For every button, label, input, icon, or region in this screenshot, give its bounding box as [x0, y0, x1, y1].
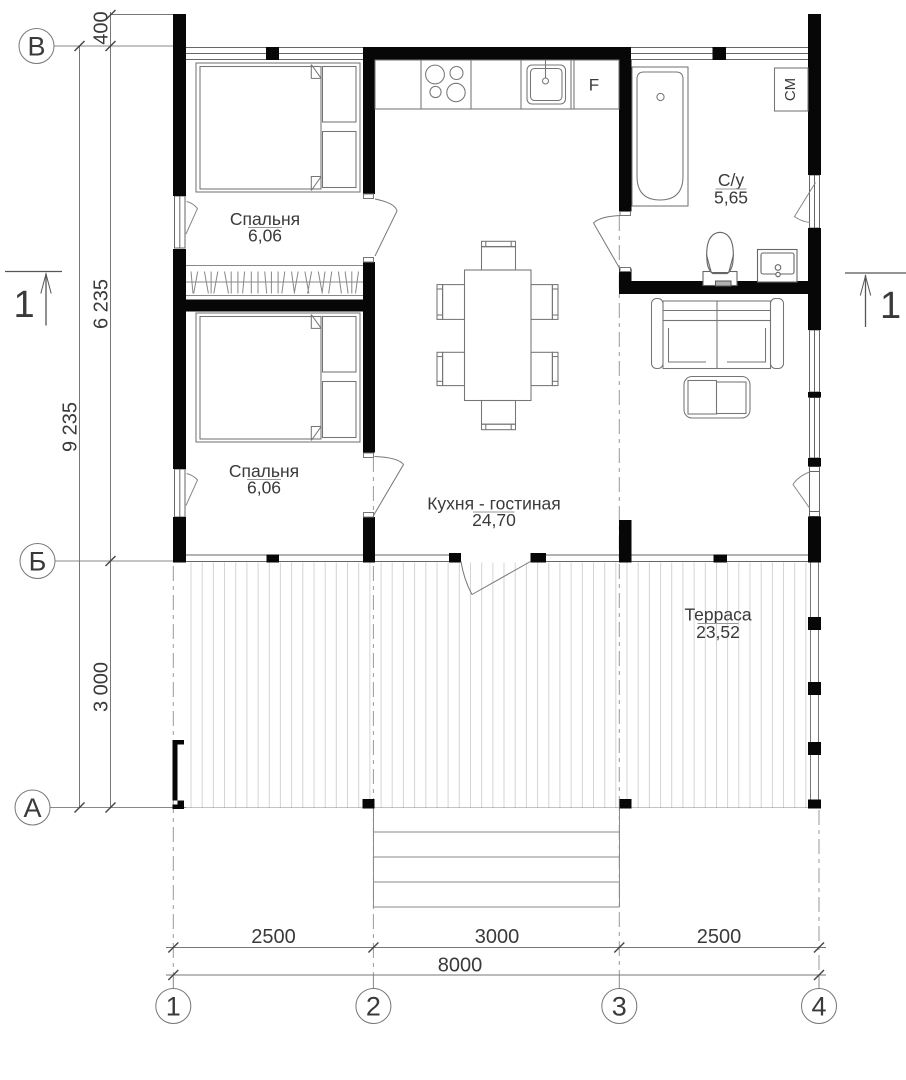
svg-text:5,65: 5,65: [714, 188, 748, 208]
svg-text:А: А: [23, 793, 41, 823]
svg-text:1: 1: [14, 284, 35, 326]
svg-text:6,06: 6,06: [248, 226, 282, 246]
svg-text:СМ: СМ: [782, 78, 799, 101]
svg-text:8000: 8000: [438, 955, 483, 977]
svg-text:24,70: 24,70: [472, 510, 516, 530]
svg-text:В: В: [27, 32, 45, 62]
svg-text:2500: 2500: [697, 926, 742, 948]
svg-text:1: 1: [166, 992, 181, 1022]
svg-text:3000: 3000: [475, 926, 520, 948]
svg-text:2500: 2500: [251, 926, 296, 948]
svg-text:1: 1: [880, 285, 901, 327]
svg-text:4: 4: [811, 992, 826, 1022]
svg-text:9 235: 9 235: [60, 402, 82, 452]
svg-text:F: F: [589, 76, 599, 95]
svg-text:3: 3: [612, 992, 627, 1022]
svg-text:23,52: 23,52: [696, 622, 740, 642]
svg-text:6,06: 6,06: [247, 478, 281, 498]
svg-text:Б: Б: [29, 547, 47, 577]
svg-text:2: 2: [366, 992, 381, 1022]
svg-text:400: 400: [91, 11, 113, 44]
svg-text:6 235: 6 235: [91, 279, 113, 329]
svg-text:3 000: 3 000: [91, 662, 113, 712]
